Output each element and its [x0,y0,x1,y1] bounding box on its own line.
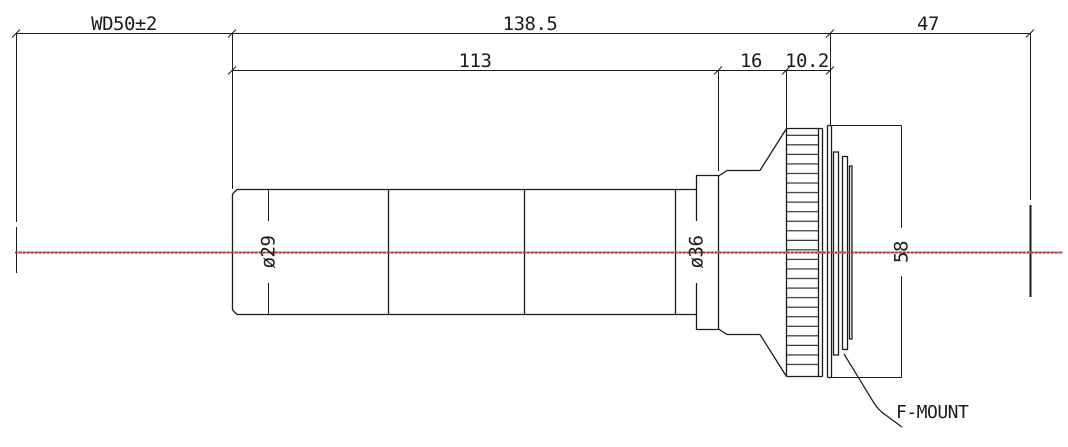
dim-front-diameter: ø29 [258,236,280,269]
fmount-label: F-MOUNT [896,402,969,423]
dimension-lines [12,30,1034,298]
dim-mid-diameter: ø36 [686,236,708,269]
lens-body [233,126,903,428]
lens-technical-drawing: WD50±2 138.5 47 113 16 10.2 ø29 ø36 58 F… [0,0,1068,447]
dimension-texts: WD50±2 138.5 47 113 16 10.2 ø29 ø36 58 F… [91,13,969,423]
dim-mount-diameter: 58 [891,241,913,263]
dimension-ticks [12,30,1034,75]
dim-flange-focal-distance: 47 [917,13,939,35]
dim-barrel-length: 113 [459,50,492,72]
drawing-canvas: WD50±2 138.5 47 113 16 10.2 ø29 ø36 58 F… [0,0,1068,447]
bayonet-ring-outer [834,152,839,355]
dim-working-distance: WD50±2 [91,13,157,35]
dim-ring-length: 16 [740,50,762,72]
flange-ring [828,126,832,378]
fmount-leader-line [844,354,902,427]
dim-total-length: 138.5 [503,13,558,35]
dim-mount-offset: 10.2 [785,50,829,72]
bayonet-rings [834,152,853,355]
